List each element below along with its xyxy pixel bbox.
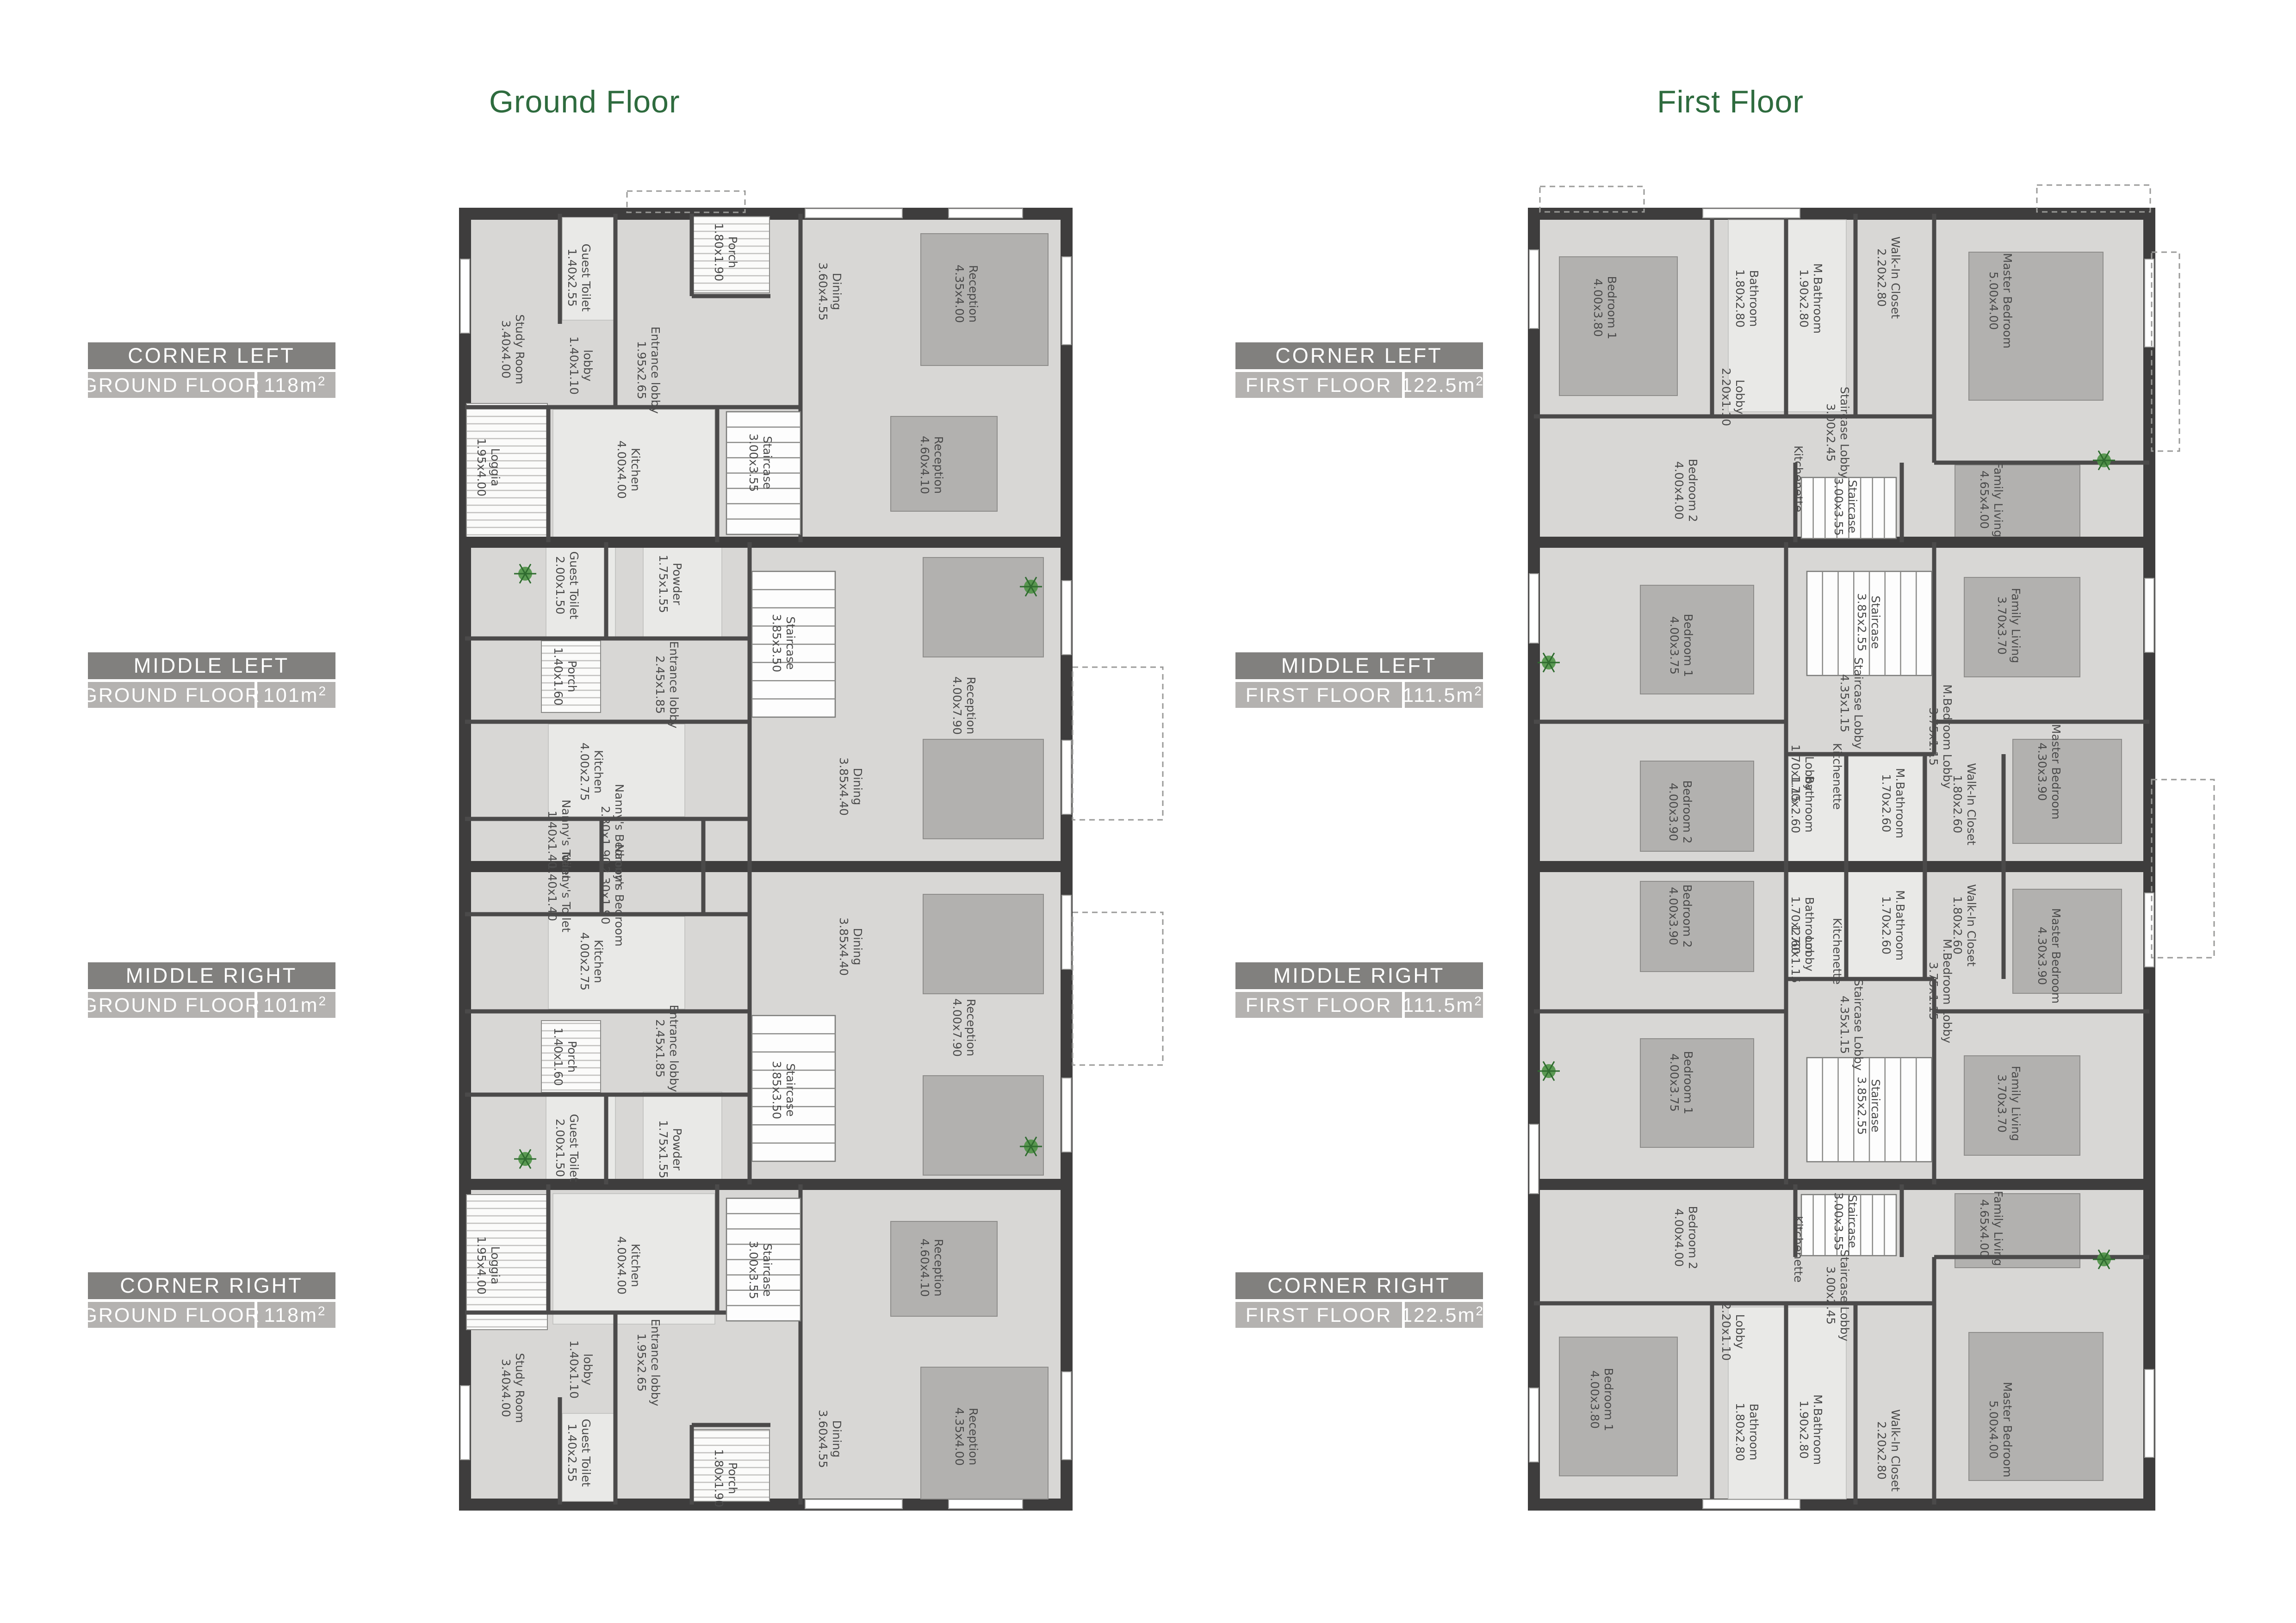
room-label: Guest Toilet1.40x2.55 [565,244,593,312]
plate-area-value: 118m2 [264,1304,327,1326]
window [1062,740,1071,814]
room-label: Family Living3.70x3.70 [1995,588,2023,663]
terrace-outline [1073,667,1163,820]
terrace-outline [2152,252,2179,451]
room-label: Reception4.35x4.00 [953,265,980,323]
room-label: Kitchen4.00x4.00 [615,440,642,499]
room-label: Bathroom1.80x2.80 [1733,1403,1761,1461]
plate-area-value: 101m2 [263,994,327,1016]
window [1529,1124,1539,1194]
unit-plate: CORNER RIGHTFIRST FLOOR122.5m2 [1235,1272,1484,1328]
unit-plate: MIDDLE RIGHTFIRST FLOOR111.5m2 [1235,962,1483,1018]
window [1062,1078,1071,1152]
plate-area-value: 118m2 [264,374,327,396]
room-label: Kitchen4.00x2.75 [578,743,605,801]
room-label: Staircase3.00x3.55 [1832,477,1859,536]
room-label: Bathroom1.80x2.80 [1733,269,1761,328]
room-label: Kitchen4.00x4.00 [615,1236,642,1295]
window [2145,893,2154,967]
room-label: Reception4.60x4.10 [918,1239,945,1297]
plate-unit-name: MIDDLE LEFT [134,654,290,677]
plate-unit-name: CORNER LEFT [1275,344,1443,367]
first-floor-plan: Bedroom 14.00x3.80Bathroom1.80x2.80M.Bat… [1529,185,2214,1509]
window [2145,1369,2154,1457]
room-label: Bedroom 14.00x3.80 [1588,1368,1615,1431]
plate-floor-name: GROUND FLOOR [81,684,261,706]
area-rug [923,739,1043,839]
room-label: M.Bathroom1.70x2.60 [1880,768,1907,838]
window [1062,1372,1071,1460]
plate-unit-name: CORNER RIGHT [120,1274,303,1297]
room-label: Walk-In Closet2.20x2.80 [1875,236,1902,319]
area-rug [1955,465,2080,539]
first-floor-title: First Floor [1657,84,1804,119]
area-rug [923,894,1043,994]
room-label: Kitchen4.00x2.75 [578,932,605,991]
floorplan-sheet: Ground Floor First Floor CORNER LEFTGROU… [0,0,2296,1623]
room-label: Kitchenette [1792,446,1805,512]
window [1529,250,1539,328]
window [949,1499,1023,1509]
room-label: Family Living3.70x3.70 [1995,1066,2023,1141]
room-label: Staircase3.00x3.55 [747,1241,774,1299]
room-label: Bedroom 14.00x3.80 [1591,276,1619,340]
room-label: Staircase3.85x2.55 [1855,1077,1882,1135]
area-rug [923,1076,1043,1175]
plate-floor-name: GROUND FLOOR [81,994,261,1016]
room-label: Bathroom1.70x2.60 [1789,775,1816,833]
room-label: Staircase3.00x3.55 [747,434,774,492]
area-rug [923,558,1043,657]
unit-plate: CORNER RIGHTGROUND FLOOR118m2 [81,1272,335,1328]
room-label: Walk-In Closet1.80x2.60 [1951,884,1978,966]
area-rug [2013,739,2122,843]
plate-floor-name: GROUND FLOOR [81,1304,261,1326]
plate-floor-name: FIRST FLOOR [1246,684,1392,706]
window [2145,259,2154,347]
plate-area-value: 101m2 [263,684,327,706]
room-label: Bedroom 24.00x4.00 [1672,459,1700,522]
window [2145,578,2154,652]
room-label: Nanny's Toilet1.40x1.40 [546,852,573,932]
room-label: M.Bathroom1.70x2.60 [1880,890,1907,960]
room-label: Study Room3.40x4.00 [499,314,527,384]
plate-floor-name: FIRST FLOOR [1246,374,1392,396]
window [805,1499,902,1509]
window [1062,895,1071,969]
room-label: Staircase3.85x3.50 [770,1061,797,1119]
area-rug [1640,761,1754,851]
unit-plate: CORNER LEFTGROUND FLOOR118m2 [81,342,335,398]
plate-unit-name: MIDDLE RIGHT [1273,964,1445,987]
room-label: Reception4.60x4.10 [918,436,945,494]
room-label: Kitchenette [1792,1216,1805,1282]
room-label: Staircase3.00x3.55 [1832,1192,1859,1251]
plate-area-value: 122.5m2 [1401,374,1484,396]
room-label: Kitchenette [1831,743,1844,810]
room-label: Walk-In Closet2.20x2.80 [1875,1409,1902,1492]
room-label: Family Living4.65x4.00 [1978,462,2005,538]
room-label: Reception4.35x4.00 [953,1407,980,1466]
unit-plate: MIDDLE RIGHTGROUND FLOOR101m2 [81,962,335,1018]
ground-floor-title: Ground Floor [489,84,680,119]
room-label: Reception4.00x7.90 [950,998,978,1057]
terrace-outline [1073,912,1163,1065]
room-label: Bedroom 24.00x3.90 [1667,781,1694,844]
room-label: Staircase3.85x2.55 [1855,593,1882,651]
plate-area-value: 111.5m2 [1402,684,1483,706]
window [1703,209,1800,218]
window [460,1386,470,1460]
area-rug [1559,1337,1677,1476]
window [1062,581,1071,655]
room-label: Powder1.75x1.55 [657,1120,684,1178]
room-label: Guest Toilet1.40x2.55 [565,1419,593,1487]
unit-plate: CORNER LEFTFIRST FLOOR122.5m2 [1235,342,1484,398]
plate-unit-name: MIDDLE RIGHT [126,964,298,987]
unit-plate: MIDDLE LEFTGROUND FLOOR101m2 [81,652,335,708]
room-label: Powder1.75x1.55 [657,555,684,613]
room-label: Family Living4.65x4.00 [1978,1191,2005,1266]
room-label: Bedroom 14.00x3.75 [1668,1051,1695,1115]
unit-plate: MIDDLE LEFTFIRST FLOOR111.5m2 [1235,652,1483,708]
window [949,209,1023,218]
room-label: Bedroom 24.00x4.00 [1672,1206,1700,1270]
ground-floor-plan: Study Room3.40x4.00Guest Toilet1.40x2.55… [460,191,1163,1509]
room-label: M.Bathroom1.90x2.80 [1797,263,1824,334]
area-rug [921,1367,1048,1499]
window [1703,1499,1800,1509]
room-label: Bedroom 14.00x3.75 [1668,614,1695,677]
window [1529,1388,1539,1462]
room-label: Staircase3.85x3.50 [770,614,797,672]
window [1529,574,1539,643]
room-label: Bedroom 24.00x3.90 [1667,885,1694,948]
window [1062,257,1071,345]
area-rug [1640,1039,1754,1147]
plate-area-value: 122.5m2 [1401,1304,1484,1326]
room-label: Kitchenette [1831,918,1844,985]
area-rug [921,234,1048,365]
plate-floor-name: GROUND FLOOR [81,374,261,396]
terrace-outline [2152,780,2214,958]
room-label: M.Bathroom1.90x2.80 [1797,1394,1824,1465]
area-rug [2013,889,2122,993]
room-label: Guest Toilet2.00x1.50 [553,1114,581,1182]
window [805,209,902,218]
window [460,259,470,333]
room-label: Guest Toilet2.00x1.50 [553,551,581,619]
plate-floor-name: FIRST FLOOR [1246,1304,1392,1326]
plate-floor-name: FIRST FLOOR [1246,994,1392,1016]
room-label: Reception4.00x7.90 [950,676,978,735]
plate-unit-name: CORNER LEFT [128,344,295,367]
room-label: Study Room3.40x4.00 [499,1353,527,1423]
area-rug [1640,585,1754,694]
plate-unit-name: CORNER RIGHT [1267,1274,1451,1297]
area-rug [1640,881,1754,972]
plate-area-value: 111.5m2 [1402,994,1483,1016]
plate-unit-name: MIDDLE LEFT [1281,654,1437,677]
room-label: Walk-In Closet1.80x2.60 [1951,763,1978,845]
